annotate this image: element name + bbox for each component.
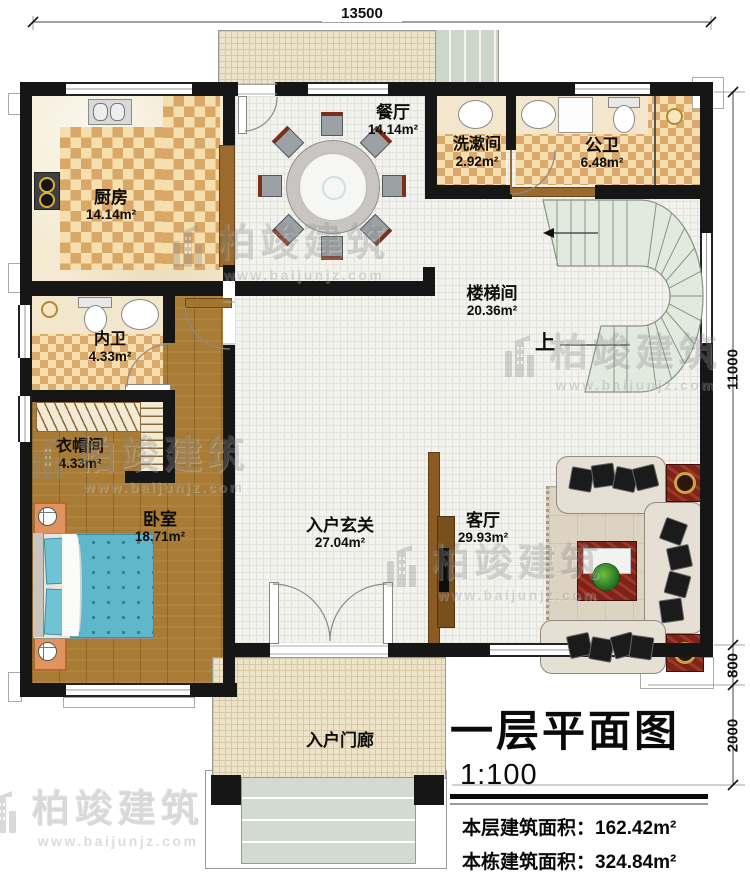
watermark-site: www.baijunjz.com	[38, 833, 199, 849]
wall-segment	[192, 82, 238, 96]
terrace-door-leaf	[238, 96, 247, 134]
wall-segment	[30, 82, 66, 96]
wall-segment	[595, 185, 712, 199]
room-label-stairwell: 楼梯间 20.36m²	[432, 284, 552, 318]
window	[700, 233, 713, 343]
bed-headboard	[33, 533, 44, 637]
sofa-pillow	[659, 598, 685, 624]
bedside-lamp	[38, 642, 57, 661]
room-label-public-bath: 公卫 6.48m²	[552, 136, 652, 170]
wall-segment	[388, 82, 437, 96]
dining-chair	[258, 175, 282, 197]
wall-segment	[275, 82, 308, 96]
dining-table-center	[322, 176, 346, 200]
wall-segment	[223, 345, 235, 683]
wall-segment	[437, 82, 575, 96]
title-block-line: 本栋建筑面积：324.84m²	[462, 847, 750, 874]
entry-door-leaf	[383, 582, 393, 644]
suite-door-leaf	[185, 298, 232, 308]
room-label-kitchen: 厨房 14.14m²	[60, 188, 162, 222]
wall-segment	[425, 185, 512, 199]
watermark-brand: 柏竣建筑	[32, 778, 204, 833]
wall-segment	[163, 402, 175, 471]
window	[18, 305, 32, 358]
wall-segment	[20, 82, 32, 305]
window	[66, 82, 192, 96]
wall-segment	[423, 267, 435, 283]
shower-partition	[654, 96, 656, 185]
porch-column	[211, 775, 241, 805]
dimension-top: 13500	[322, 5, 402, 22]
bathroom-sink	[521, 100, 556, 129]
room-label-washroom: 洗漱间 2.92m²	[427, 136, 527, 169]
room-label-cloakroom: 衣帽间 4.33m²	[30, 438, 130, 471]
stove-burner	[39, 177, 55, 193]
wall-segment	[223, 96, 235, 145]
window	[66, 683, 190, 697]
kitchen-sliding-door	[219, 145, 235, 267]
wall-segment	[235, 643, 270, 657]
porch-floor	[212, 657, 446, 779]
bedside-lamp	[38, 507, 57, 526]
title-underline-thick	[450, 794, 708, 799]
sofa-pillow	[629, 635, 655, 661]
bath-sliding-door	[508, 187, 598, 197]
porch-column	[414, 775, 444, 805]
entry-door-leaf	[269, 582, 279, 644]
wall-segment	[235, 281, 435, 296]
room-label-dining: 餐厅 14.14m²	[342, 103, 444, 137]
bed-blanket	[70, 534, 154, 638]
washing-machine	[558, 97, 593, 133]
wall-segment	[20, 281, 223, 296]
tv-screen	[439, 548, 449, 592]
dining-chair	[321, 236, 343, 260]
exterior-sill	[63, 697, 195, 708]
room-label-living: 客厅 29.93m²	[413, 511, 553, 545]
title-underline-thin	[450, 803, 708, 805]
watermark: 柏竣建筑 www.baijunjz.com	[0, 778, 204, 849]
bathroom-sink	[458, 100, 493, 129]
stair-up-label: 上	[530, 332, 560, 354]
title-block-line: 本层建筑面积：162.42m²	[462, 813, 750, 840]
kitchen-sink-basin	[93, 103, 108, 121]
potted-plant	[593, 564, 619, 590]
wall-segment	[20, 442, 32, 697]
corner-table-medallion	[674, 472, 696, 494]
room-label-ensuite: 内卫 4.33m²	[60, 331, 160, 364]
wall-segment	[32, 390, 175, 402]
window	[308, 82, 388, 96]
wall-segment	[700, 343, 713, 657]
wall-segment	[223, 265, 235, 281]
wall-segment	[20, 358, 32, 396]
stove-burner	[39, 192, 55, 208]
window	[18, 396, 32, 442]
dimension-right-11000: 11000	[725, 332, 742, 408]
dining-chair	[321, 112, 343, 136]
wall-segment	[163, 296, 175, 343]
watermark-logo-icon	[0, 789, 24, 839]
kitchen-floor-checker	[163, 96, 220, 270]
porch-steps	[241, 777, 416, 864]
shower-head	[41, 301, 58, 318]
plan-scale: 1:100	[460, 759, 538, 792]
kitchen-sink-basin	[110, 103, 125, 121]
wall-segment	[700, 82, 713, 233]
window	[575, 82, 650, 96]
wardrobe-hatched	[36, 402, 144, 432]
sofa-pillow	[666, 544, 693, 571]
dimension-right-800: 800	[725, 636, 742, 696]
title-block: 一层平面图 1:100 本层建筑面积：162.42m² 本栋建筑面积：324.8…	[450, 697, 750, 880]
room-label-porch: 入户门廊	[270, 731, 410, 750]
terrace-steps	[435, 30, 498, 83]
toilet-bowl	[84, 305, 107, 333]
plan-title: 一层平面图	[450, 697, 680, 759]
shower-head	[666, 108, 683, 125]
wall-segment	[125, 471, 175, 483]
wall-segment	[190, 683, 237, 697]
bed-sheet-fold	[62, 534, 82, 636]
room-label-foyer: 入户玄关 27.04m²	[270, 516, 410, 550]
toilet-bowl	[613, 105, 635, 133]
floor-plan: 厨房 14.14m² 餐厅 14.14m² 洗漱间 2.92m² 公卫 6.48…	[0, 0, 750, 880]
room-label-bedroom: 卧室 18.71m²	[110, 510, 210, 544]
bathroom-sink	[121, 299, 159, 330]
wall-segment	[388, 643, 490, 657]
dining-chair	[382, 175, 406, 197]
